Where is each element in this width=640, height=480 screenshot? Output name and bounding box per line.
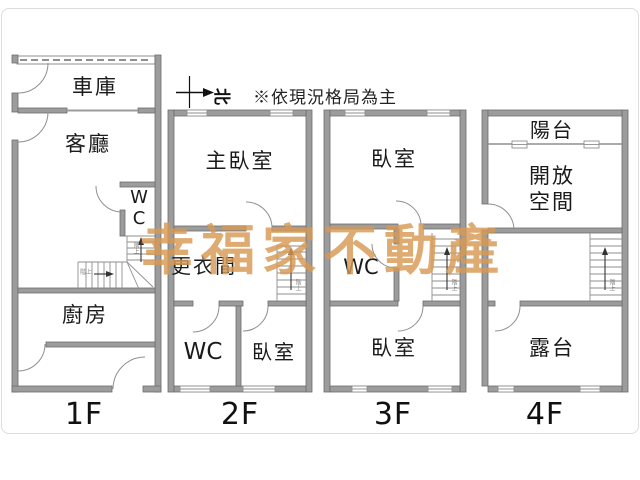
room-label-open-space: 開放 空間: [517, 163, 587, 215]
stair-up-note: 階上: [80, 269, 92, 276]
room-label-wc-2f: WC: [180, 341, 226, 364]
room-label-balcony: 陽台: [527, 119, 577, 142]
door-arc: [18, 112, 48, 142]
door-arc: [96, 186, 122, 212]
room-label-living: 客廳: [55, 133, 121, 156]
door-arc: [243, 306, 268, 331]
floor-label-1f: 1F: [54, 397, 114, 432]
room-label-kitchen: 廚房: [52, 304, 118, 327]
stair-up-note: 階上: [132, 242, 139, 254]
door-arc: [113, 357, 145, 389]
room-label-bedroom-2f: 臥室: [250, 341, 298, 364]
door-arc: [18, 63, 48, 93]
room-label-bedroom-3f-top: 臥室: [368, 148, 420, 171]
door-arc: [193, 306, 219, 332]
room-label-bedroom-3f-bottom: 臥室: [368, 337, 420, 360]
floor-label-2f: 2F: [210, 397, 270, 432]
compass-icon: [176, 76, 214, 108]
floor-label-4f: 4F: [515, 397, 575, 432]
floor-label-3f: 3F: [363, 397, 423, 432]
layout-disclaimer-note: ※依現況格局為主: [253, 83, 397, 108]
compass-north-label: 北: [211, 88, 236, 105]
stair-up-note: 階上: [608, 279, 615, 291]
room-label-garage: 車庫: [62, 76, 128, 99]
agency-watermark: 幸福家不動產: [140, 206, 506, 285]
room-label-master-bedroom: 主臥室: [190, 150, 290, 173]
floorplan-image: 北 ※依現況格局為主 幸福家不動產 車庫 客廳 WC 廚房 1F 主臥室 更衣間…: [0, 0, 640, 480]
door-arc: [398, 306, 423, 331]
door-arc: [18, 344, 45, 371]
room-label-terrace: 露台: [527, 337, 577, 360]
staircase-4f: [590, 233, 622, 301]
door-arc: [495, 306, 520, 331]
